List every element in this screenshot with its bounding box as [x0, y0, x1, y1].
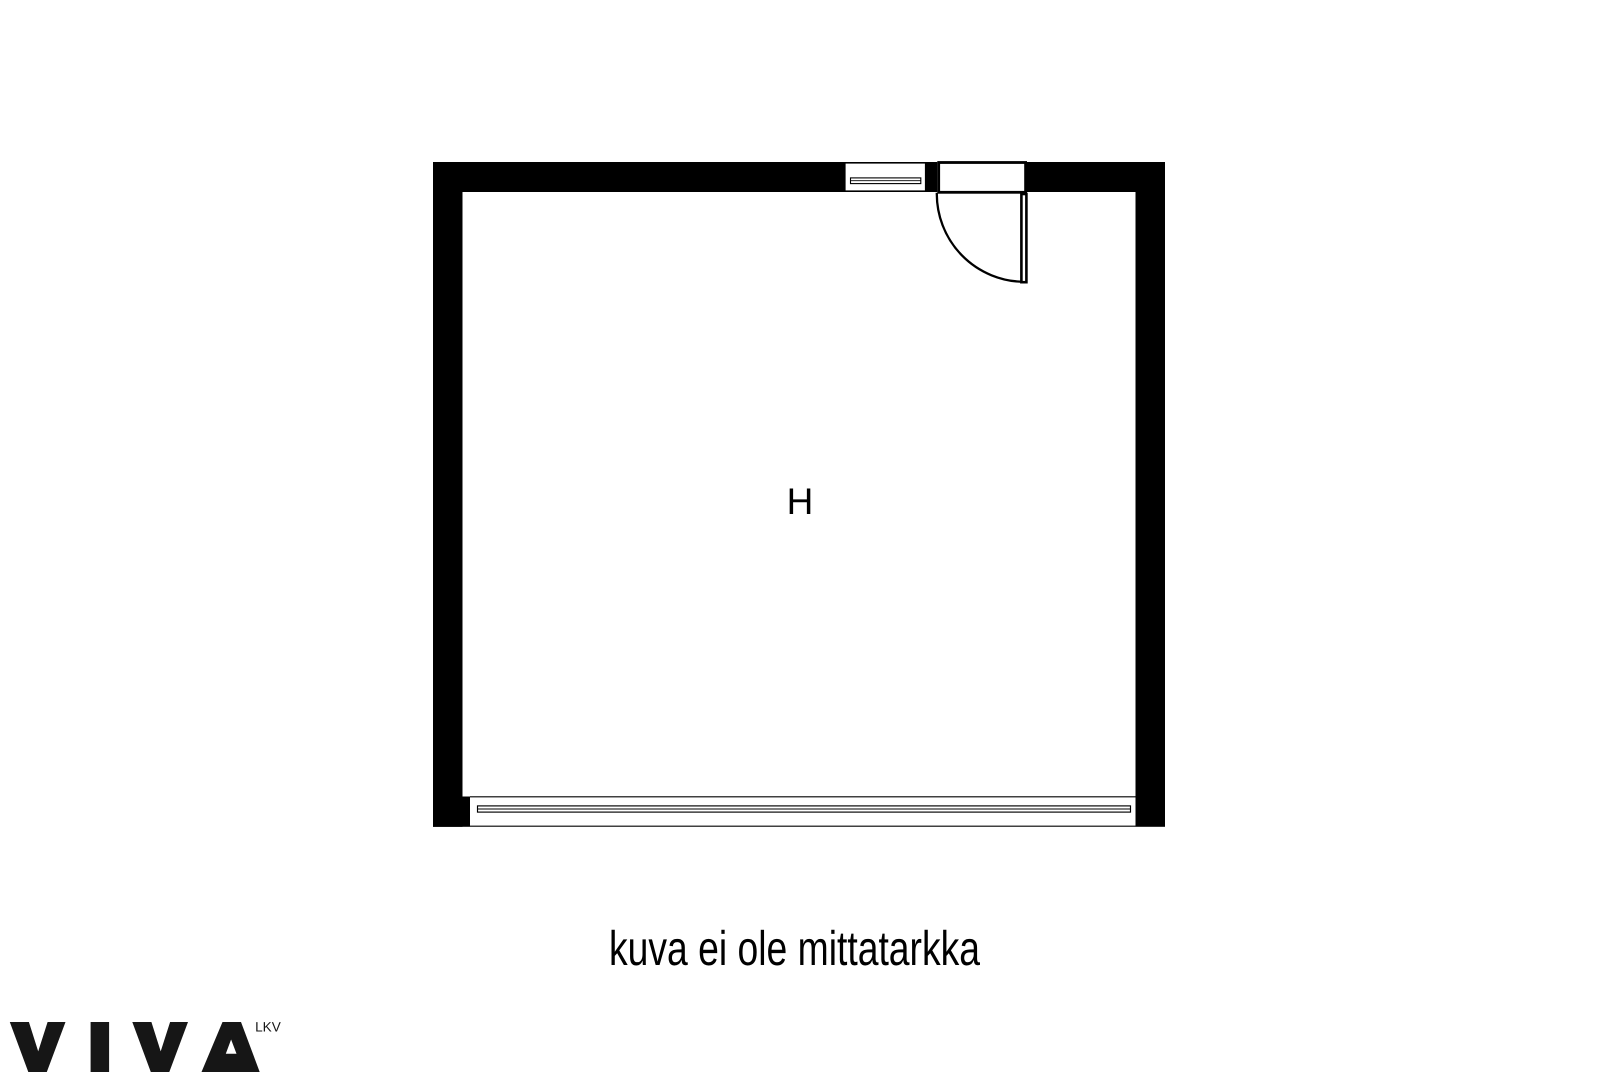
svg-text:LKV: LKV	[255, 1019, 281, 1034]
svg-text:H: H	[787, 481, 814, 522]
svg-text:kuva ei ole mittatarkka: kuva ei ole mittatarkka	[609, 922, 981, 976]
